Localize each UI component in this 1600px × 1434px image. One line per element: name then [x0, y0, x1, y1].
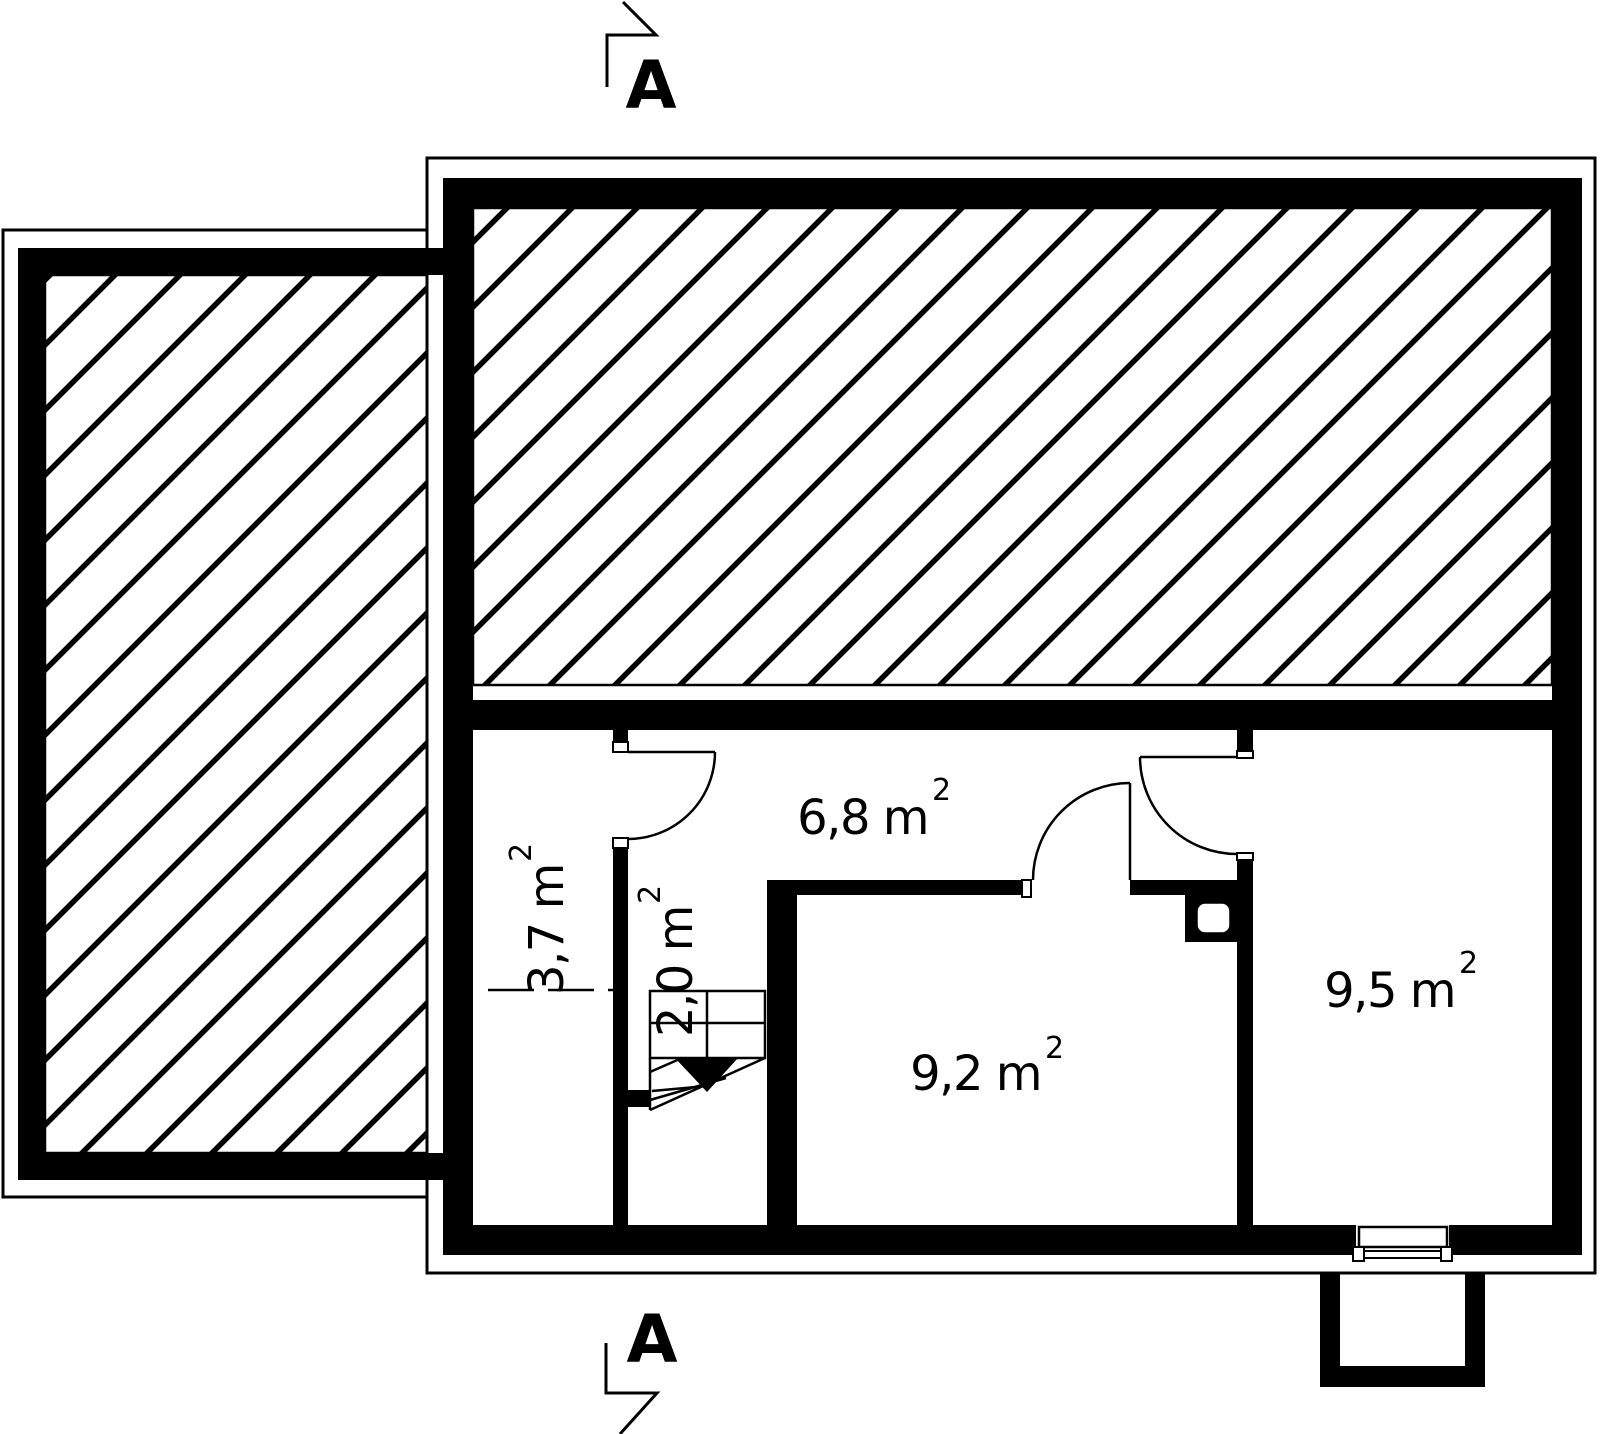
window-sill-tick-right: [1441, 1247, 1452, 1261]
wall-main-right: [1552, 178, 1582, 1255]
terrace-window: [1353, 1224, 1452, 1261]
stair-area-text: 2,0 m: [648, 906, 704, 1037]
wall-stair-stub: [628, 1090, 650, 1107]
wall-annex-bottom: [18, 1153, 443, 1180]
floor-plan-canvas: A A 6,8 m 2 9,2 m 2 9,5 m 2 3,7 m 2 2,0 …: [0, 0, 1600, 1434]
section-letter-bottom: A: [626, 1301, 677, 1378]
wall-annex-top: [18, 248, 443, 275]
section-letter-top: A: [625, 47, 676, 124]
wall-room95-west-upper: [1237, 730, 1253, 752]
jamb-door37-top: [613, 742, 628, 752]
stoop-wall-bottom: [1320, 1366, 1485, 1387]
hall-area-sup: 2: [932, 773, 951, 808]
chimney-flue-icon: [1196, 902, 1231, 934]
jamb-door95-bottom: [1237, 853, 1253, 860]
wall-room37-east: [613, 847, 628, 1225]
wall-main-left: [443, 178, 473, 1255]
hall-area-text: 6,8 m: [797, 790, 928, 846]
room92-area-text: 9,2 m: [910, 1046, 1041, 1102]
wall-annex-left: [18, 248, 45, 1180]
room92-area-sup: 2: [1045, 1031, 1064, 1066]
room37-area-text: 3,7 m: [519, 864, 575, 995]
upper-roof-hatch: [473, 208, 1552, 685]
wall-main-top: [443, 178, 1582, 208]
wall-room92-north-left: [767, 880, 1022, 895]
wall-room92-north-right: [1130, 880, 1185, 895]
wall-middle-horizontal: [473, 700, 1552, 730]
jamb-door37-bottom: [613, 838, 628, 848]
wall-room92-west: [767, 880, 797, 1225]
window-frame: [1359, 1227, 1447, 1247]
jamb-door95-top: [1237, 751, 1253, 758]
annex-roof-hatch: [45, 275, 427, 1153]
wall-room95-west-lower: [1237, 858, 1253, 1225]
room95-area-text: 9,5 m: [1324, 963, 1455, 1019]
stair-area-sup: 2: [633, 885, 668, 904]
jamb-door92-left: [1022, 880, 1031, 897]
floor-plan: A A 6,8 m 2 9,2 m 2 9,5 m 2 3,7 m 2 2,0 …: [0, 0, 1600, 1434]
window-sill-tick-left: [1353, 1247, 1364, 1261]
room37-area-sup: 2: [504, 843, 539, 862]
room95-area-sup: 2: [1459, 946, 1478, 981]
